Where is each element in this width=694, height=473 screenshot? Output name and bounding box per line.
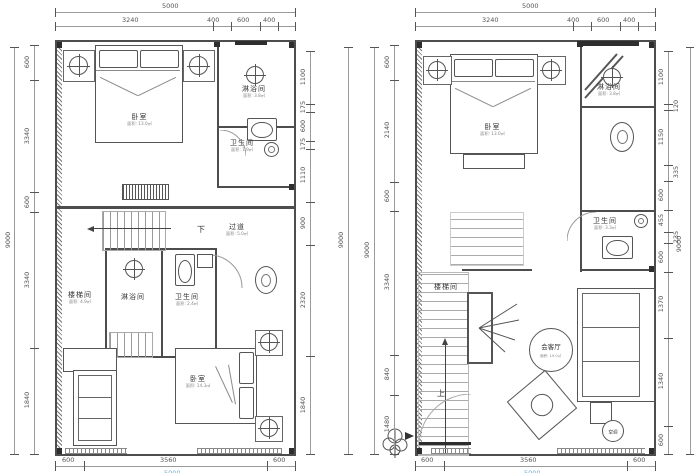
- dim-label-total: 5000: [164, 469, 181, 473]
- dim-label: 1110: [299, 160, 307, 190]
- bed-bench: [463, 154, 525, 169]
- dim-label: 1840: [23, 385, 31, 415]
- room-area: 面积: 4.9㎡: [64, 300, 96, 305]
- dim-label: 9000: [4, 225, 12, 255]
- dim-label: 400: [623, 16, 635, 24]
- room-label-corridor: 过道 面积: 5.0㎡: [215, 224, 259, 238]
- column: [649, 448, 654, 454]
- dim-label: 1100: [657, 62, 665, 92]
- toilet-icon: [602, 236, 633, 259]
- sheet-line: [96, 70, 180, 71]
- dim-label: 9000: [337, 225, 345, 255]
- basin-icon: [264, 142, 279, 157]
- dim-label: 600: [633, 456, 645, 464]
- dim-label: 900: [299, 208, 307, 238]
- column: [417, 42, 422, 48]
- door-arc: [219, 130, 246, 157]
- door-leaf: [419, 442, 471, 445]
- dim-label: 840: [383, 359, 391, 389]
- room-label-bedroom-bottom: 卧室 面积: 14.3㎡: [173, 376, 223, 390]
- dim-label: 5000: [162, 2, 179, 10]
- room-label-stairwell: 楼梯间: [423, 284, 469, 292]
- dim-label-total: 5000: [524, 469, 541, 473]
- room-label-stairwell: 楼梯间 面积: 4.9㎡: [57, 292, 103, 306]
- room-label-bedroom-top: 卧室 面积: 13.0㎡: [112, 114, 167, 128]
- stairs-landing: [450, 212, 524, 266]
- dim-label: 3240: [122, 16, 139, 24]
- ceiling-lamp-icon: [542, 61, 560, 79]
- dim-label: 600: [23, 47, 31, 77]
- pillow: [239, 352, 254, 384]
- dim-label: 600: [421, 456, 433, 464]
- room-area: 面积: 3.8㎡: [234, 94, 275, 99]
- shower-head-icon: [246, 66, 264, 84]
- dim-label: 600: [237, 16, 249, 24]
- room-label-living: 会客厅 面积: 19.0㎡: [529, 328, 573, 372]
- dim-line: [55, 466, 296, 467]
- column: [57, 42, 62, 48]
- dim-label: 600: [273, 456, 285, 464]
- bed: [95, 45, 183, 143]
- dim-line: [348, 47, 349, 455]
- room-area: 面积: 3.8㎡: [589, 92, 630, 97]
- door-arc: [567, 212, 597, 242]
- ac-text: 空调: [608, 428, 617, 435]
- dim-label: 1370: [657, 289, 665, 319]
- dim-label: 9000: [363, 235, 371, 265]
- sink-icon: [197, 254, 213, 268]
- column: [289, 184, 294, 190]
- dim-label: 3560: [520, 456, 537, 464]
- wall-segment: [217, 186, 294, 188]
- dim-line: [415, 12, 656, 13]
- dim-label: 400: [207, 16, 219, 24]
- dim-label: 3560: [160, 456, 177, 464]
- room-area: 面积: 5.0㎡: [222, 232, 253, 237]
- pillow: [239, 387, 254, 419]
- column: [649, 42, 654, 48]
- dim-line: [690, 47, 691, 455]
- dim-label: 1480: [383, 409, 391, 439]
- basin-icon: [255, 266, 277, 294]
- dim-label: 455: [657, 205, 665, 235]
- room-label-shower-mid: 淋浴间: [109, 294, 157, 302]
- window-lintel: [235, 41, 267, 45]
- stairs-corridor: [102, 211, 166, 251]
- dim-label: 335: [672, 157, 680, 187]
- mirror-icon: [634, 214, 648, 228]
- wall-segment: [57, 206, 294, 209]
- wall-segment: [580, 106, 654, 108]
- basin-icon: [610, 122, 634, 152]
- room-name: 楼梯间: [423, 284, 469, 292]
- pillow: [140, 50, 179, 68]
- room-label-toilet-mid: 卫生间 面积: 2.4㎡: [161, 294, 213, 308]
- dim-line: [14, 47, 15, 455]
- floorplan-canvas: 卧室 面积: 13.0㎡ 淋浴间 面积: 3.8㎡ 卫生间 面积: 1.9㎡ 下…: [0, 0, 694, 473]
- dim-label: 3240: [482, 16, 499, 24]
- down-label: 下: [197, 224, 205, 235]
- entry-arrow-icon: [405, 432, 414, 440]
- armchair: [507, 370, 577, 440]
- column: [577, 42, 583, 47]
- door-arc: [209, 254, 243, 288]
- left-wall-hatch: [57, 42, 62, 454]
- ceiling-lamp-icon: [69, 56, 88, 75]
- sofa: [73, 370, 117, 446]
- shower-head-icon: [125, 260, 143, 278]
- dim-label: 5000: [522, 2, 539, 10]
- window-lintel: [577, 41, 639, 46]
- blanket-fold: [493, 88, 531, 107]
- sofa-cushions: [582, 293, 640, 397]
- sofa-cushions: [78, 375, 112, 441]
- wall-segment: [580, 269, 654, 271]
- arrow-shaft: [93, 228, 171, 229]
- room-label-bedroom-top: 卧室 面积: 13.0㎡: [465, 124, 520, 138]
- room-label-shower-top: 淋浴间 面积: 3.8㎡: [225, 86, 283, 100]
- column: [289, 448, 294, 454]
- dim-line: [394, 45, 395, 455]
- dim-label: 2140: [383, 115, 391, 145]
- dim-label: 3340: [383, 267, 391, 297]
- window-strip: [431, 448, 471, 454]
- dim-line: [374, 47, 375, 455]
- toilet-icon: [247, 118, 277, 141]
- window-strip: [197, 448, 282, 454]
- wall-segment: [462, 269, 532, 271]
- dim-label: 1100: [299, 62, 307, 92]
- room-area: 面积: 13.0㎡: [120, 122, 159, 127]
- dim-label: 600: [657, 425, 665, 455]
- dim-label: 600: [657, 242, 665, 272]
- ceiling-lamp-icon: [260, 419, 278, 437]
- blanket-fold: [100, 77, 138, 96]
- ceiling-lamp-icon: [189, 56, 208, 75]
- column: [289, 42, 294, 48]
- column: [214, 42, 220, 47]
- dim-line: [415, 466, 656, 467]
- dim-line: [34, 45, 35, 455]
- cabinet: [63, 348, 117, 372]
- down-arrow-icon: [87, 226, 94, 232]
- column: [649, 266, 654, 272]
- column: [57, 448, 62, 454]
- bed: [450, 54, 538, 154]
- ceiling-lamp-icon: [260, 333, 278, 351]
- sofa: [577, 288, 655, 402]
- ceiling-lamp-icon: [428, 61, 446, 79]
- toilet-icon: [175, 254, 195, 286]
- dim-label: 600: [383, 47, 391, 77]
- dim-label: 600: [597, 16, 609, 24]
- window-strip: [65, 448, 127, 454]
- dim-line: [55, 12, 296, 13]
- room-area: 面积: 14.3㎡: [181, 384, 216, 389]
- ac-unit-label: 空调: [602, 420, 624, 442]
- dim-label: 175: [299, 129, 307, 159]
- stair-break-lines: [455, 300, 521, 356]
- room-area: 面积: 19.0㎡: [540, 352, 561, 357]
- dim-label: 400: [263, 16, 275, 24]
- dim-label: 2320: [299, 285, 307, 315]
- radiator-hatch: [122, 184, 169, 200]
- right-plan: 上 楼梯间 卧室 面积: 13.0㎡ 淋浴间 面积: 3.8㎡: [415, 40, 656, 456]
- dim-label: 3340: [23, 265, 31, 295]
- blanket-fold: [455, 88, 493, 107]
- pillow: [454, 59, 493, 77]
- room-name: 会客厅: [541, 341, 561, 351]
- dim-label: 600: [23, 187, 31, 217]
- dim-label: 600: [383, 181, 391, 211]
- room-label-shower-top: 淋浴间 面积: 3.8㎡: [580, 84, 638, 98]
- wall-segment: [217, 42, 219, 188]
- dim-label: 400: [567, 16, 579, 24]
- dim-label: 600: [62, 456, 74, 464]
- dim-label: 9000: [675, 229, 683, 259]
- blanket-fold: [138, 77, 176, 96]
- sheet-line: [451, 81, 535, 82]
- room-area: 面积: 2.4㎡: [169, 302, 205, 307]
- room-area: 面积: 13.0㎡: [473, 132, 512, 137]
- column: [417, 448, 422, 454]
- entry-door-arc: [419, 394, 471, 446]
- dim-line: [668, 51, 669, 455]
- window-strip: [557, 448, 645, 454]
- left-plan: 卧室 面积: 13.0㎡ 淋浴间 面积: 3.8㎡ 卫生间 面积: 1.9㎡ 下…: [55, 40, 296, 456]
- dim-label: 120: [672, 91, 680, 121]
- dim-label: 3340: [23, 121, 31, 151]
- dim-label: 1340: [657, 366, 665, 396]
- room-name: 淋浴间: [109, 294, 157, 302]
- pillow: [99, 50, 138, 68]
- pillow: [495, 59, 534, 77]
- dim-label: 1150: [657, 122, 665, 152]
- dim-label: 1840: [299, 390, 307, 420]
